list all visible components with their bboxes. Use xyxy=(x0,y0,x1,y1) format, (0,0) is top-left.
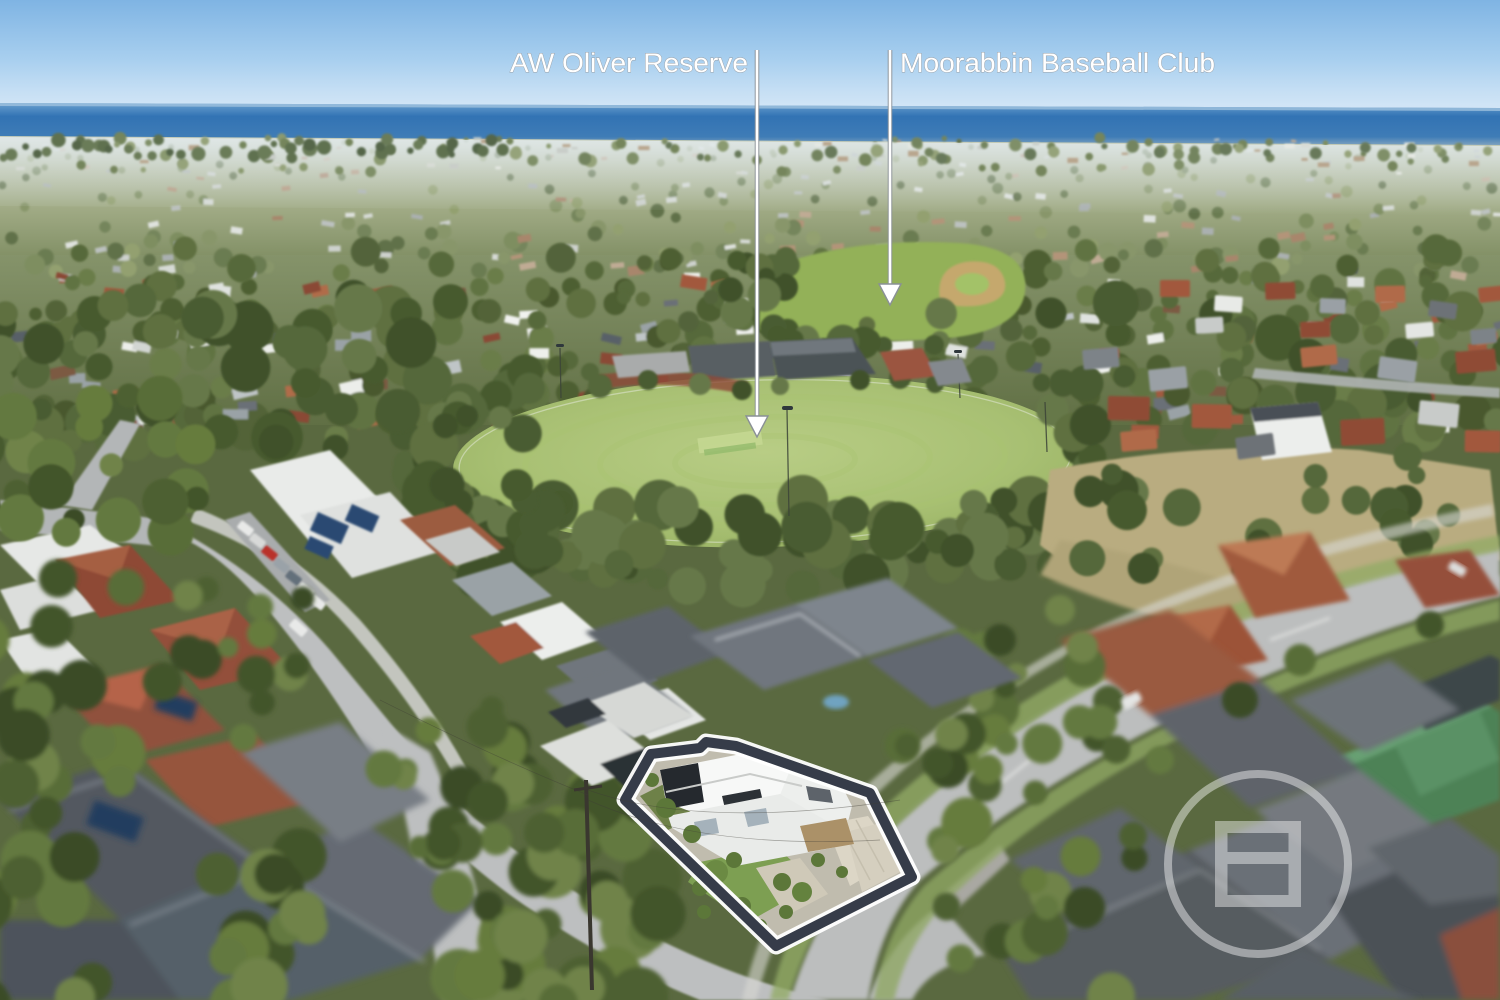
svg-text:AW Oliver Reserve: AW Oliver Reserve xyxy=(510,48,748,78)
svg-text:Moorabbin Baseball Club: Moorabbin Baseball Club xyxy=(900,48,1215,78)
